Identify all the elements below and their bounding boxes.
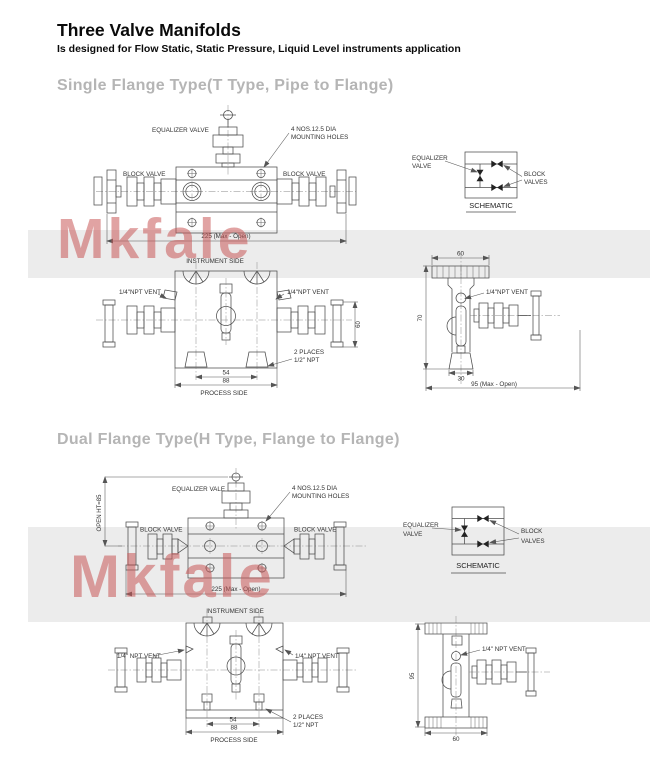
catalog-page: Three Valve Manifolds Is designed for Fl… (0, 0, 650, 769)
dim-54-label: 54 (222, 370, 230, 377)
block-valve-left-label: BLOCK VALVE (123, 171, 165, 178)
single-bottom-view: INSTRUMENT SIDE (96, 258, 362, 397)
technical-drawing-layer: 225 (Max - Open) EQUALIZER VALVE 4 NOS.1… (0, 0, 650, 769)
process-side-label: PROCESS SIDE (200, 390, 247, 397)
vent-left-label: 1/4"NPT VENT (119, 289, 161, 296)
dim-88-label: 88 (222, 378, 230, 385)
dim-95-label-dual: 95 (410, 672, 416, 679)
dim-60-side-label: 60 (356, 321, 362, 328)
schematic-equalizer-label-dual-2: VALVE (403, 531, 422, 538)
places-label-1: 2 PLACES (294, 349, 324, 356)
vent-side-label-dual: 1/4" NPT VENT (482, 646, 526, 653)
places-label-dual-2: 1/2" NPT (293, 722, 318, 729)
process-side-label-dual: PROCESS SIDE (210, 737, 257, 744)
block-valve-right-label-dual: BLOCK VALVE (294, 527, 336, 534)
block-valve-left-label-dual: BLOCK VALVE (140, 527, 182, 534)
watermark-text-2: Mkfale (70, 547, 275, 607)
mounting-holes-label-2: MOUNTING HOLES (291, 134, 348, 141)
block-valve-right-label: BLOCK VALVE (283, 171, 325, 178)
vent-right-label: 1/4"NPT VENT (287, 289, 329, 296)
dual-bottom-view: 1/4" NPT VENT 1/4" NPT VENT 2 PLACES 1/2… (108, 611, 358, 744)
dim-60-top-label: 60 (457, 251, 465, 258)
schematic-caption-dual: SCHEMATIC (456, 561, 500, 570)
dim-30-label: 30 (457, 376, 465, 383)
equalizer-valve-label: EQUALIZER VALVE (152, 127, 209, 134)
single-side-view: 60 1/4"NPT VENT 70 (418, 251, 580, 392)
schematic-block-label-1: BLOCK (524, 171, 546, 178)
mounting-holes-label-1: 4 NOS.12.5 DIA (291, 126, 337, 133)
dual-side-view: 1/4" NPT VENT 95 60 (410, 616, 550, 743)
schematic-block-label-dual-1: BLOCK (521, 528, 543, 535)
places-label-dual-1: 2 PLACES (293, 714, 323, 721)
places-label-2: 1/2" NPT (294, 357, 319, 364)
vent-right-label-dual: 1/4" NPT VENT (295, 653, 339, 660)
dim-54-label-dual: 54 (229, 717, 237, 724)
vent-left-label-dual: 1/4" NPT VENT (117, 653, 161, 660)
mounting-holes-label-dual-1: 4 NOS.12.5 DIA (292, 485, 338, 492)
dim-60-label-dual: 60 (452, 736, 460, 743)
schematic-equalizer-label-dual-1: EQUALIZER (403, 522, 439, 529)
open-height-label: OPEN HT=85 (97, 494, 103, 532)
schematic-block-label-2: VALVES (524, 179, 548, 186)
schematic-equalizer-label-2: VALVE (412, 163, 431, 170)
schematic-caption: SCHEMATIC (469, 201, 513, 210)
schematic-equalizer-label-1: EQUALIZER (412, 155, 448, 162)
dim-95-max-open-label: 95 (Max - Open) (471, 381, 517, 388)
equalizer-valve-label-dual: EQUALIZER VALE (172, 486, 225, 493)
mounting-holes-label-dual-2: MOUNTING HOLES (292, 493, 349, 500)
vent-side-label: 1/4"NPT VENT (486, 289, 528, 296)
dim-70-label: 70 (418, 314, 424, 321)
watermark-text-1: Mkfale (57, 211, 252, 268)
single-schematic: EQUALIZER VALVE BLOCK VALVES SCHEMATIC (412, 152, 548, 212)
dual-schematic: EQUALIZER VALVE BLOCK VALVES SCHEMATIC (403, 507, 545, 573)
dim-88-label-dual: 88 (230, 725, 238, 732)
schematic-block-label-dual-2: VALVES (521, 538, 545, 545)
